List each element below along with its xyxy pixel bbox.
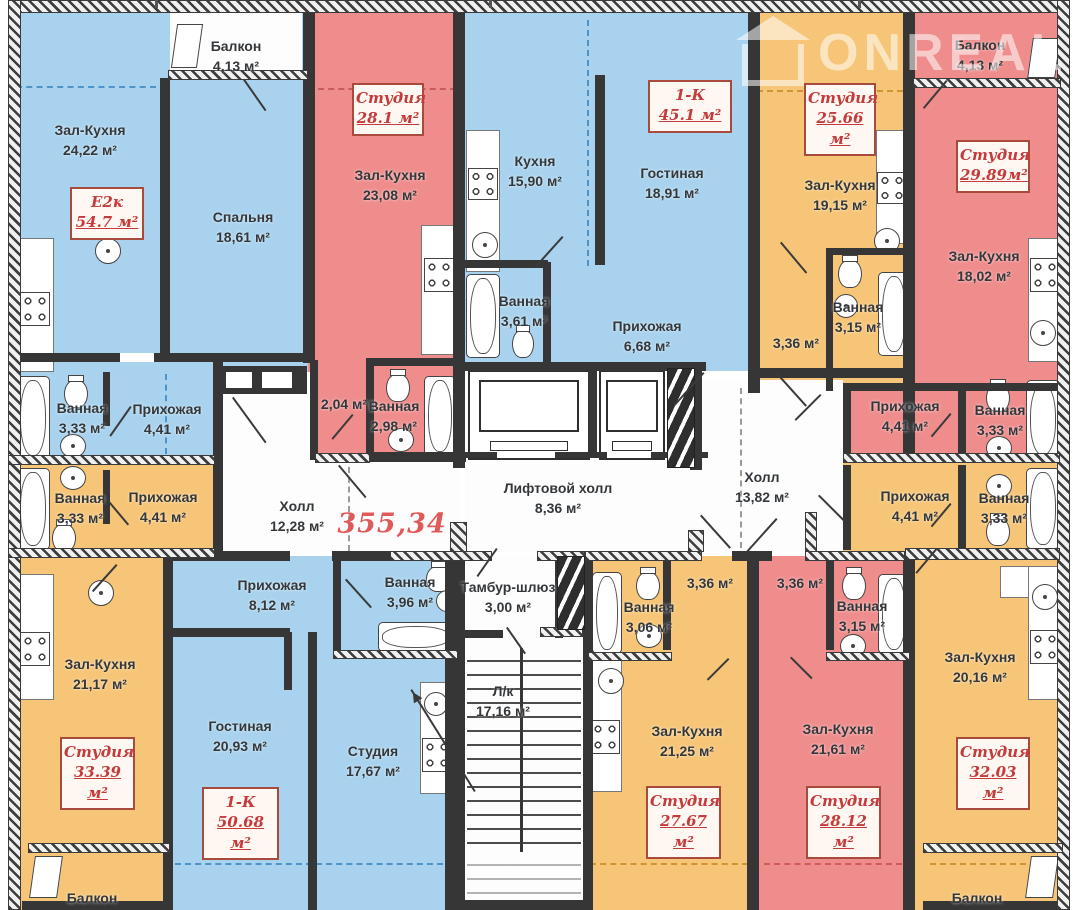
room-label: Гостиная20,93 м²: [208, 717, 271, 757]
stove-icon: [20, 632, 50, 666]
unit-type-label: Студия33.39 м²: [60, 737, 135, 810]
elevator-door: [497, 452, 555, 458]
wall: [308, 632, 317, 910]
sink-icon: [88, 580, 114, 606]
balcony-sill: [913, 78, 1061, 88]
bathtub-icon: [378, 622, 454, 652]
section-line: [764, 863, 902, 865]
room-label: Ванная3,33 м²: [979, 489, 1030, 529]
room-label: Зал-Кухня21,25 м²: [651, 722, 722, 762]
room-label: Прихожая4,41 м²: [870, 397, 939, 437]
wall: [460, 260, 548, 268]
bathtub-icon: [592, 572, 622, 654]
toilet-icon: [636, 572, 660, 600]
pillar: [805, 512, 817, 552]
unit-type-label: Студия25.66 м²: [804, 83, 876, 156]
wall: [595, 75, 605, 265]
wall: [465, 630, 503, 638]
room-label: Ванная3,96 м²: [385, 573, 436, 613]
wall: [748, 13, 760, 393]
room-label: 3,36 м²: [773, 334, 819, 354]
wall: [310, 360, 318, 460]
door-opening: [120, 353, 154, 362]
hall-13-area: [702, 380, 843, 552]
room-label-balcony: Балкон4,13 м²: [211, 37, 262, 77]
wall-hatched: [588, 652, 672, 661]
wall-hatched: [8, 455, 215, 465]
section-line: [16, 86, 156, 88]
unit-type-label: Студия32.03 м²: [956, 737, 1030, 810]
stove-icon: [1030, 630, 1060, 664]
window-icon: [29, 856, 63, 898]
room-label: Зал-Кухня20,16 м²: [944, 648, 1015, 688]
room-label: Зал-Кухня21,61 м²: [802, 720, 873, 760]
sink-icon: [472, 232, 498, 258]
sink-icon: [95, 238, 121, 264]
room-label: 2,04 м²: [321, 395, 367, 415]
bathtub-icon: [1026, 380, 1060, 459]
bathtub-icon: [466, 274, 500, 358]
unit-type-label: 1-К45.1 м²: [648, 80, 732, 133]
wall-hatched: [843, 453, 1060, 463]
room-label: Прихожая4,41 м²: [132, 400, 201, 440]
room-label: Прихожая6,68 м²: [612, 317, 681, 357]
room-label: Гостиная18,91 м²: [640, 164, 703, 204]
outer-wall: [8, 0, 1070, 13]
wall-hatched: [8, 548, 215, 558]
stove-icon: [468, 168, 498, 200]
stove-icon: [424, 258, 454, 292]
room-label: Ванная3,33 м²: [975, 401, 1026, 441]
bathtub-icon: [16, 468, 50, 550]
wall-hatched: [826, 652, 910, 661]
room-label: Ванная3,15 м²: [837, 597, 888, 637]
pillar: [450, 522, 467, 552]
wall: [163, 551, 173, 910]
wall: [160, 78, 170, 356]
wall: [332, 551, 390, 561]
unit-type-label: Студия28.1 м²: [352, 83, 424, 136]
wall: [843, 383, 851, 461]
room-label: Зал-Кухня21,17 м²: [64, 655, 135, 695]
sink-icon: [1030, 320, 1056, 346]
window-icon: [1025, 856, 1059, 898]
room-label: Зал-Кухня24,22 м²: [54, 121, 125, 161]
wall: [826, 248, 906, 255]
section-line: [590, 863, 748, 865]
wall: [732, 551, 757, 561]
unit-type-label: Студия28.12 м²: [806, 786, 881, 859]
elevator-icon: [599, 370, 665, 460]
toilet-icon: [512, 330, 534, 358]
closet-shelf: [262, 372, 292, 388]
balcony-sill: [923, 843, 1063, 853]
floor-plan: Балкон4,13 м² Зал-Кухня24,22 м² Спальня1…: [0, 0, 1079, 910]
room-label: Зал-Кухня18,02 м²: [948, 247, 1019, 287]
window-icon: [1027, 38, 1061, 78]
toilet-icon: [838, 260, 862, 288]
pillar: [688, 530, 704, 552]
room-label: Кухня15,90 м²: [508, 152, 562, 192]
room-label: Зал-Кухня23,08 м²: [354, 166, 425, 206]
room-label: 3,36 м²: [687, 574, 733, 594]
wall: [747, 551, 759, 910]
room-label: Зал-Кухня19,15 м²: [804, 176, 875, 216]
wall: [843, 383, 1063, 391]
room-label: Ванная3,61 м²: [499, 292, 550, 332]
wall: [757, 551, 772, 561]
room-label: Ванная3,15 м²: [833, 298, 884, 338]
section-line: [587, 20, 589, 266]
room-label: Ванная2,98 м²: [369, 397, 420, 437]
bathtub-icon: [16, 376, 50, 460]
dimension-tick: [858, 0, 861, 8]
wall-hatched: [805, 551, 905, 561]
bathtub-icon: [424, 376, 456, 456]
wall: [172, 628, 290, 637]
wall: [588, 366, 597, 456]
wall: [826, 560, 834, 650]
wall: [453, 13, 465, 468]
room-label: Прихожая4,41 м²: [128, 488, 197, 528]
wall-hatched: [585, 551, 702, 561]
toilet-icon: [842, 572, 866, 600]
room-label-balcony: Балкон: [67, 889, 118, 909]
room-label: Прихожая8,12 м²: [237, 576, 306, 616]
room-label-hall: Холл13,82 м²: [735, 468, 789, 508]
wall: [958, 390, 966, 460]
vent-shaft: [667, 368, 695, 468]
room-label-balcony: Балкон: [952, 889, 1003, 909]
room-label: Ванная3,33 м²: [55, 489, 106, 529]
wall: [843, 465, 851, 550]
room-label: Ванная3,33 м²: [57, 399, 108, 439]
sink-icon: [60, 466, 86, 490]
wall-hatched: [315, 453, 370, 463]
elevator-door: [607, 452, 651, 458]
vent-shaft: [557, 556, 585, 630]
room-label-tambour: Тамбур-шлюз3,00 м²: [461, 578, 556, 618]
wall: [366, 358, 461, 366]
sink-icon: [1032, 584, 1058, 610]
balcony-sill: [28, 843, 170, 853]
stairs-icon: [467, 648, 581, 848]
room-label-elevator-hall: Лифтовой холл8,36 м²: [504, 479, 613, 519]
wall: [303, 13, 315, 363]
room-label: Ванная3,06 м²: [624, 598, 675, 638]
wall-hatched: [333, 650, 458, 659]
room-label: Спальня18,61 м²: [213, 208, 273, 248]
wall: [445, 900, 593, 910]
unit-type-label: Е2к54.7 м²: [70, 187, 144, 240]
sink-icon: [598, 668, 624, 694]
elevator-icon: [468, 370, 590, 460]
stairs-icon: [467, 852, 581, 900]
dimension-tick: [489, 0, 492, 8]
wall: [284, 632, 292, 690]
total-area-label: 355,34: [337, 509, 446, 540]
unit-type-label: 1-К50.68 м²: [202, 787, 279, 860]
wall: [958, 465, 966, 550]
wall: [903, 551, 915, 910]
wall: [333, 556, 341, 652]
room-label: 3,36 м²: [777, 574, 823, 594]
room-label-stairs: Л/к17,16 м²: [476, 682, 530, 722]
stove-icon: [1030, 258, 1060, 292]
room-label: Студия17,67 м²: [346, 742, 400, 782]
unit-type-label: Студия29.89м²: [956, 140, 1030, 193]
wall-hatched: [390, 551, 492, 561]
room-label-balcony: Балкон4,13 м²: [955, 36, 1006, 76]
room-label: Прихожая4,41 м²: [880, 487, 949, 527]
wall: [366, 452, 466, 462]
closet-shelf: [226, 372, 252, 388]
room-label-hall: Холл12,28 м²: [270, 497, 324, 537]
unit-type-label: Студия27.67 м²: [646, 786, 721, 859]
stove-icon: [20, 292, 50, 326]
bathtub-icon: [1026, 468, 1060, 549]
wall: [8, 353, 308, 362]
stairs-divider: [520, 648, 523, 852]
dimension-tick: [155, 0, 158, 8]
stove-icon: [590, 720, 620, 754]
